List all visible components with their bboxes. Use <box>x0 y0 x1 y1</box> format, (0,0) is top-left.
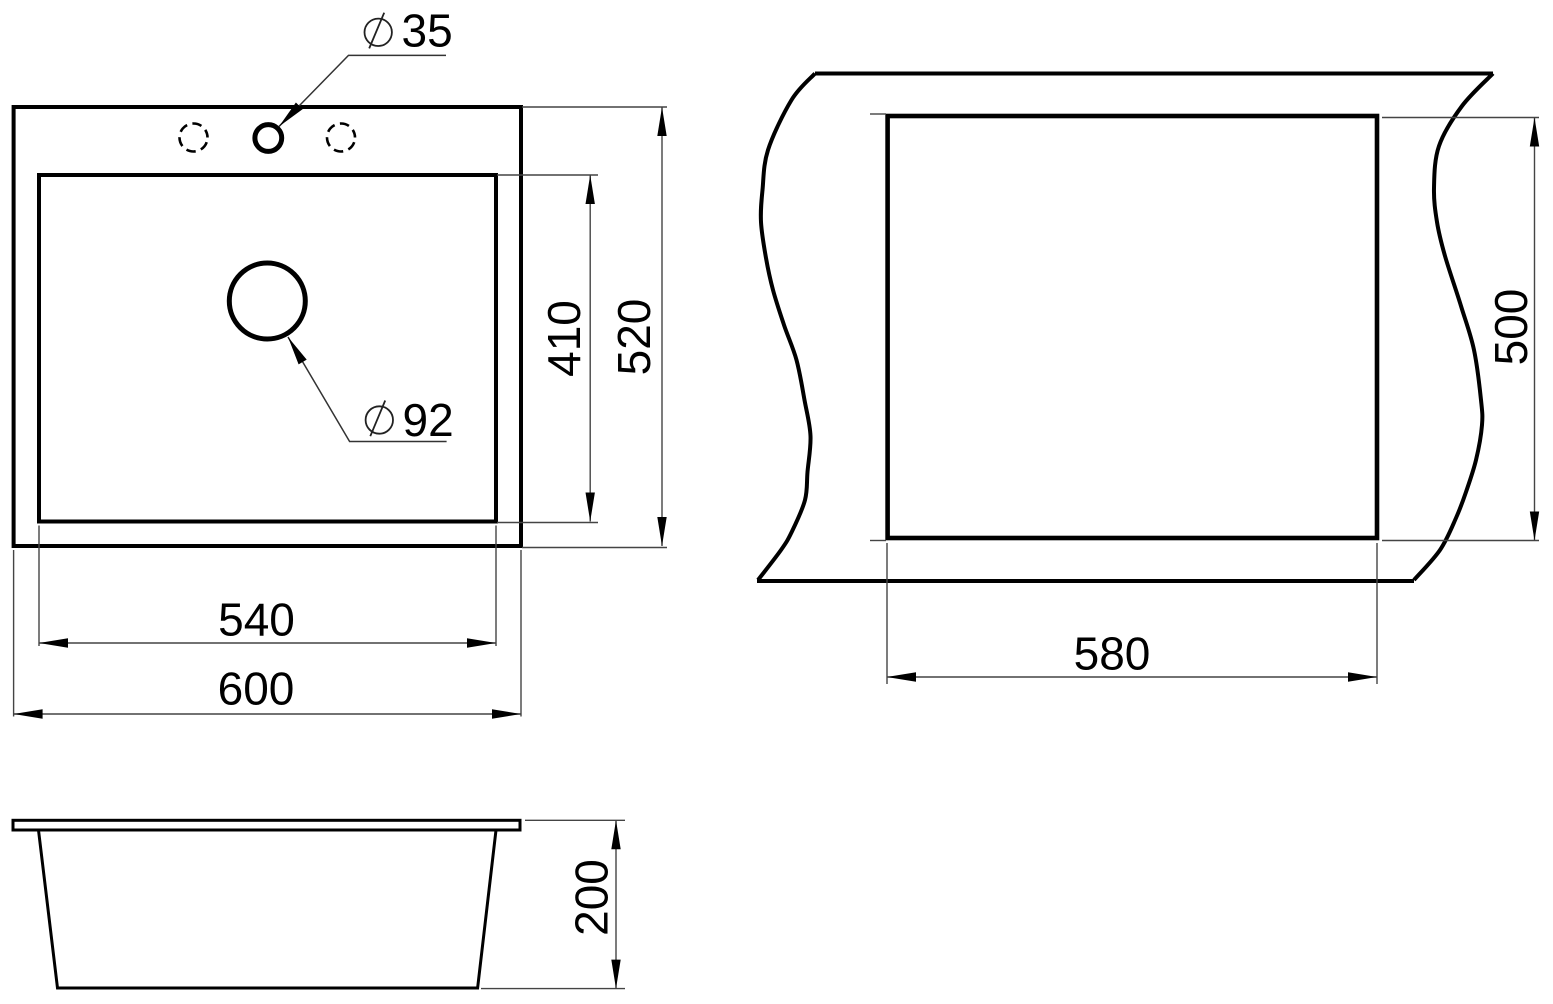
svg-text:200: 200 <box>566 859 618 936</box>
svg-text:540: 540 <box>218 594 295 646</box>
svg-text:600: 600 <box>218 663 295 715</box>
svg-text:35: 35 <box>402 5 453 57</box>
svg-text:580: 580 <box>1074 628 1151 680</box>
svg-text:520: 520 <box>608 299 660 376</box>
svg-text:410: 410 <box>538 300 590 377</box>
svg-text:500: 500 <box>1485 289 1537 366</box>
svg-text:92: 92 <box>403 394 454 446</box>
